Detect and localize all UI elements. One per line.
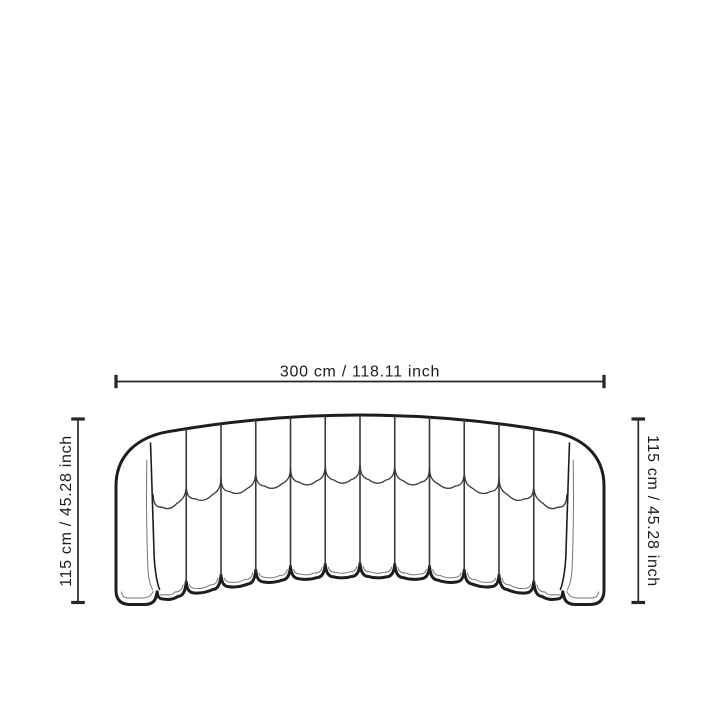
width-dimension: 300 cm / 118.11 inch [116,364,604,389]
height-dimension-left: 115 cm / 45.28 inch [58,419,85,603]
height-dimension-left-label: 115 cm / 45.28 inch [58,435,75,587]
sofa-dimension-diagram: 300 cm / 118.11 inch 115 cm / 45.28 inch… [0,0,720,720]
height-dimension-right: 115 cm / 45.28 inch [632,419,662,603]
height-dimension-right-label: 115 cm / 45.28 inch [644,435,661,587]
width-dimension-label: 300 cm / 118.11 inch [280,364,440,381]
diagram-canvas: 300 cm / 118.11 inch 115 cm / 45.28 inch… [0,0,720,720]
sofa-front-view-drawing [116,415,604,605]
